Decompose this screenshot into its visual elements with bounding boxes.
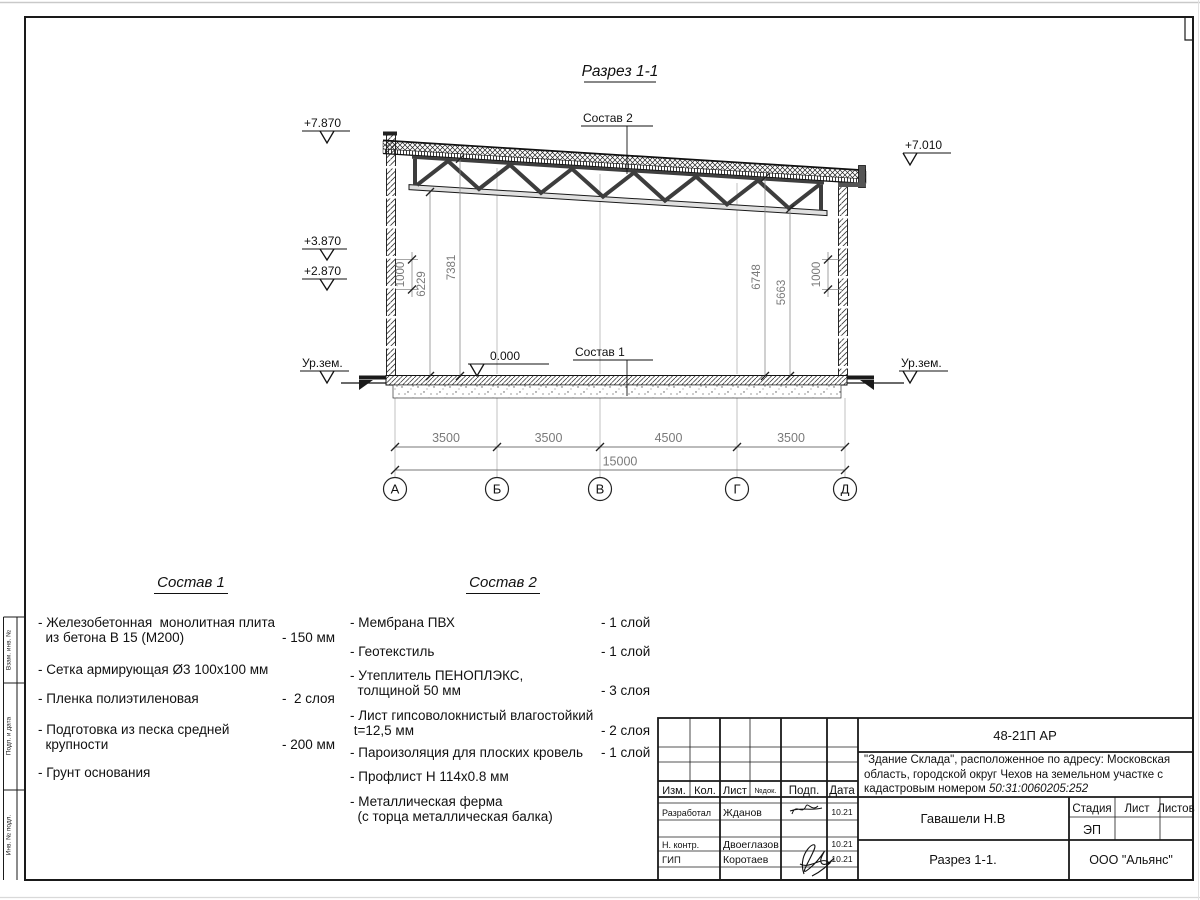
tb-stage-value: ЭП xyxy=(1083,823,1101,837)
elevation-3870: +3.870 xyxy=(304,234,341,248)
tb-date-developer: 10.21 xyxy=(831,807,853,817)
material-value: - 1 слой xyxy=(601,615,656,631)
material-name: - Мембрана ПВХ xyxy=(350,615,601,631)
list-item: - Подготовка из песка средней крупности … xyxy=(38,722,344,753)
dim-1000-right: 1000 xyxy=(811,262,823,288)
material-value: - 2 слоя xyxy=(282,691,344,707)
material-name: - Подготовка из песка средней крупности xyxy=(38,722,282,753)
list-item: - Лист гипсоволокнистый влагостойкий t=1… xyxy=(350,708,656,739)
tb-date-gip: 10.21 xyxy=(831,854,853,864)
material-value: - 2 слоя xyxy=(601,723,656,739)
signature-developer xyxy=(790,805,822,814)
parapet-cap xyxy=(383,132,397,136)
callout-sostav2: Состав 2 xyxy=(583,111,633,125)
corner-box xyxy=(1185,17,1193,40)
material-value: - 1 слой xyxy=(601,745,656,761)
dim-6748: 6748 xyxy=(751,264,763,290)
list-item: - Профлист Н 114х0.8 мм xyxy=(350,769,656,785)
side-stamp-label-podp: Подп. и дата xyxy=(6,716,13,755)
tb-header-izm: Изм. xyxy=(662,785,686,797)
tb-name-ncontrol: Двоеглазов xyxy=(723,839,779,851)
tb-header-data: Дата xyxy=(829,785,855,797)
project-description: "Здание Склада", расположенное по адресу… xyxy=(864,753,1190,797)
sand-layer xyxy=(393,385,841,398)
material-name: - Пароизоляция для плоских кровель xyxy=(350,745,601,761)
material-name: - Геотекстиль xyxy=(350,644,601,660)
elevation-0000: 0.000 xyxy=(490,349,520,363)
dim-6229: 6229 xyxy=(416,271,428,297)
drawing-sheet: Взам. инв. № Подп. и дата Инв. № подл. Р… xyxy=(0,0,1200,900)
cadastral-number: 50:31:0060205:252 xyxy=(989,783,1088,795)
side-stamp-label-vzam: Взам. инв. № xyxy=(6,630,13,670)
span-dim-ab: 3500 xyxy=(432,431,460,445)
composition-2-title: Состав 2 xyxy=(350,575,656,591)
tb-header-list: Лист xyxy=(723,785,747,797)
ground-level-label-left: Ур.зем. xyxy=(302,356,343,370)
tb-approver: Гавашели Н.В xyxy=(921,811,1006,826)
list-item: - Сетка армирующая Ø3 100х100 мм xyxy=(38,662,344,678)
tb-drawing-name: Разрез 1-1. xyxy=(929,852,996,867)
tb-role-gip: ГИП xyxy=(662,855,681,866)
floor-structure xyxy=(341,376,904,399)
total-dim: 15000 xyxy=(603,455,638,469)
tb-role-developer: Разработал xyxy=(662,808,711,818)
axis-label-d: Д xyxy=(841,482,850,497)
material-value: - 1 слой xyxy=(601,644,656,660)
material-value: - 3 слоя xyxy=(601,683,656,699)
list-item: - Утеплитель ПЕНОПЛЭКС, толщиной 50 мм -… xyxy=(350,668,656,699)
title-block: Изм. Кол. Лист №док. Подп. Дата Разработ… xyxy=(658,718,1195,880)
signature-control-gip xyxy=(800,845,834,876)
tb-name-gip: Коротаев xyxy=(723,854,769,866)
list-item: - Грунт основания xyxy=(38,765,344,781)
list-item: - Мембрана ПВХ - 1 слой xyxy=(350,615,656,631)
footing-left xyxy=(359,380,373,390)
horizontal-dimensions: 3500 3500 4500 3500 15000 xyxy=(391,431,849,474)
section-title: Разрез 1-1 xyxy=(582,63,659,80)
footing-right xyxy=(860,380,874,390)
axis-label-g: Г xyxy=(733,482,740,497)
tb-date-ncontrol: 10.21 xyxy=(831,839,853,849)
side-stamp-label-inv: Инв. № подл. xyxy=(6,815,13,856)
material-name: - Утеплитель ПЕНОПЛЭКС, толщиной 50 мм xyxy=(350,668,601,699)
material-value: - 150 мм xyxy=(282,630,344,646)
ground-level-label-right: Ур.зем. xyxy=(901,356,942,370)
axis-label-b: Б xyxy=(493,482,502,497)
list-item: - Железобетонная монолитная плита из бет… xyxy=(38,615,344,646)
composition-1-list: Состав 1 - Железобетонная монолитная пли… xyxy=(38,575,344,780)
span-dim-gd: 3500 xyxy=(777,431,805,445)
dim-7381: 7381 xyxy=(446,255,458,281)
list-item: - Металлическая ферма (с торца металличе… xyxy=(350,794,656,825)
tb-sheet-label: Лист xyxy=(1125,803,1151,815)
composition-2-list: Состав 2 - Мембрана ПВХ - 1 слой - Геоте… xyxy=(350,575,656,825)
span-dim-bv: 3500 xyxy=(535,431,563,445)
material-name: - Металлическая ферма (с торца металличе… xyxy=(350,794,601,825)
tb-name-developer: Жданов xyxy=(723,807,762,819)
axis-bubbles: А Б В Г Д xyxy=(384,478,857,501)
axis-label-a: А xyxy=(391,482,400,497)
floor-slab xyxy=(386,376,847,386)
elevation-7870: +7.870 xyxy=(304,116,341,130)
tb-header-ndok: №док. xyxy=(755,786,777,795)
axis-label-v: В xyxy=(596,482,605,497)
tb-stage-label: Стадия xyxy=(1072,803,1111,815)
right-wall xyxy=(838,186,849,376)
elevation-7010: +7.010 xyxy=(905,138,942,152)
composition-1-title: Состав 1 xyxy=(38,575,344,591)
list-item: - Геотекстиль - 1 слой xyxy=(350,644,656,660)
material-name: - Лист гипсоволокнистый влагостойкий t=1… xyxy=(350,708,601,739)
tb-header-podp: Подп. xyxy=(789,785,820,797)
dim-5663: 5663 xyxy=(776,280,788,306)
tb-company: ООО "Альянс" xyxy=(1089,853,1173,867)
material-name: - Железобетонная монолитная плита из бет… xyxy=(38,615,282,646)
tb-header-kol: Кол. xyxy=(694,785,716,797)
tb-doc-code: 48-21П АР xyxy=(993,728,1057,743)
material-name: - Грунт основания xyxy=(38,765,282,781)
material-name: - Сетка армирующая Ø3 100х100 мм xyxy=(38,662,282,678)
tb-sheets-label: Листов xyxy=(1157,803,1194,815)
material-name: - Профлист Н 114х0.8 мм xyxy=(350,769,601,785)
list-item: - Пароизоляция для плоских кровель - 1 с… xyxy=(350,745,656,761)
callout-sostav1: Состав 1 xyxy=(575,345,625,359)
list-item: - Пленка полиэтиленовая - 2 слоя xyxy=(38,691,344,707)
dim-1000-left: 1000 xyxy=(395,262,407,288)
roof-bearing-plate xyxy=(838,183,866,188)
span-dim-vg: 4500 xyxy=(655,431,683,445)
truss-bottom-chord xyxy=(409,185,827,216)
material-name: - Пленка полиэтиленовая xyxy=(38,691,282,707)
elevation-2870: +2.870 xyxy=(304,264,341,278)
material-value: - 200 мм xyxy=(282,737,344,753)
tb-role-ncontrol: Н. контр. xyxy=(662,840,699,850)
left-wall xyxy=(383,132,397,377)
